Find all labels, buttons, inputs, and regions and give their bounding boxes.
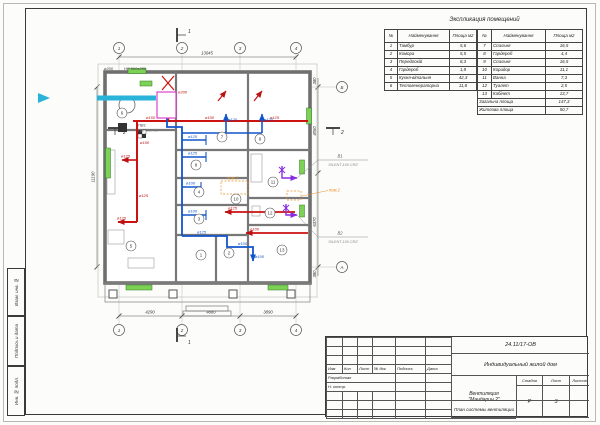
fan1-tag-label: В1 bbox=[337, 154, 342, 159]
schedule-row: 11Ванна7,3 bbox=[478, 75, 583, 83]
room-name: Ванна bbox=[492, 75, 546, 83]
schedule-total-row: Загальна площа147,3 bbox=[478, 99, 583, 107]
title-block: Изм Кол Лист № док Подпись Дата Разработ… bbox=[325, 336, 588, 417]
schedule-row: 9Спальня16,5 bbox=[478, 59, 583, 67]
object-name: Индивидуальный жилой дом bbox=[451, 354, 589, 376]
schedule-row: 5Кухня-вітальня42,3 bbox=[385, 75, 477, 83]
room-num: 10 bbox=[478, 67, 492, 75]
schedule-row: 8Гардероб4,4 bbox=[478, 51, 583, 59]
duct-size-label: ø200 bbox=[178, 90, 188, 95]
duct-size-label: ø125 bbox=[139, 193, 149, 198]
dim-label: 380 bbox=[312, 270, 317, 278]
room-area: 2,5 bbox=[546, 83, 583, 91]
duct-size-label: ø125 bbox=[264, 117, 274, 122]
section-mark-label: 1 bbox=[188, 29, 191, 35]
room-number: 11 bbox=[271, 180, 276, 185]
duct-size-label: ø125 bbox=[228, 206, 238, 211]
total-value: 50,7 bbox=[546, 107, 583, 115]
duct-size-label: ø100 bbox=[188, 209, 198, 214]
drawing-title: План системы вентиляции bbox=[451, 400, 516, 418]
zone-label: пом.3 bbox=[227, 176, 239, 181]
sheet-header: Лист bbox=[542, 376, 569, 386]
room-num: 3 bbox=[385, 59, 398, 67]
schedule-row: 3Передпокій8,3 bbox=[385, 59, 477, 67]
rev-col-list: Лист bbox=[358, 365, 373, 374]
schedule-row: 4Гардероб1,8 bbox=[385, 67, 477, 75]
dim-label: 11190 bbox=[91, 171, 96, 183]
room-number: 12 bbox=[268, 211, 273, 216]
zone-label: пом.2 bbox=[329, 188, 341, 193]
room-circle: 8 bbox=[191, 160, 201, 170]
duct-size-label: ø150 bbox=[140, 140, 150, 145]
room-circle: 5 bbox=[126, 241, 136, 251]
drawing-page: Взам. инв. № Подпись и дата Инв. № подл.… bbox=[0, 0, 600, 425]
signature-row: Разработал bbox=[327, 374, 452, 383]
room-num: 12 bbox=[478, 83, 492, 91]
walls bbox=[98, 64, 317, 316]
rev-col-kol: Кол bbox=[343, 365, 358, 374]
room-num: 8 bbox=[478, 51, 492, 59]
ahu-tag-label: ПВ1 bbox=[138, 123, 146, 128]
room-name: Спальня bbox=[492, 43, 546, 51]
duct-size-label: ø100 bbox=[238, 241, 248, 246]
dim-label: 13045 bbox=[201, 51, 213, 56]
schedule-row: 1Тамбур5,6 bbox=[385, 43, 477, 51]
title-block-empty-cell bbox=[516, 400, 589, 418]
room-name: Комора bbox=[398, 51, 450, 59]
role-label: Разработал bbox=[327, 374, 396, 383]
col-header-num: № bbox=[385, 30, 398, 43]
room-name: Кабінет bbox=[492, 91, 546, 99]
ahu-model-label: ПВУ-450-ЕС bbox=[138, 129, 159, 133]
schedule-header-row: № Найменування Площа м2 bbox=[385, 30, 477, 43]
rev-col-data: Дата bbox=[426, 365, 452, 374]
axis-bubble-label: 1 bbox=[118, 46, 121, 51]
axis-bubble-label: 4 bbox=[295, 328, 298, 333]
room-area: 13,7 bbox=[546, 91, 583, 99]
room-name: Туалет bbox=[492, 83, 546, 91]
room-area: 7,3 bbox=[546, 75, 583, 83]
fan1-model-label: SILENT-100 CRZ bbox=[328, 163, 358, 167]
rev-col-izm: Изм bbox=[327, 365, 343, 374]
room-num: 4 bbox=[385, 67, 398, 75]
room-circle: 13 bbox=[277, 245, 287, 255]
axis-bubble-label: 1 bbox=[118, 328, 121, 333]
room-name: Гардероб bbox=[492, 51, 546, 59]
role-label: Н. контр. bbox=[327, 383, 396, 392]
room-circle: 7 bbox=[217, 132, 227, 142]
duct-size-label: ø150 bbox=[205, 115, 215, 120]
room-circle: 4 bbox=[194, 187, 204, 197]
rev-col-doc: № док bbox=[373, 365, 396, 374]
schedule-row: 10Коридор11,1 bbox=[478, 67, 583, 75]
room-area: 5,5 bbox=[450, 51, 477, 59]
dim-label: 380 bbox=[312, 77, 317, 85]
room-num: 5 bbox=[385, 75, 398, 83]
axis-bubble-label: Б bbox=[341, 85, 344, 90]
room-num: 1 bbox=[385, 43, 398, 51]
schedule-row: 6Теплогенераторна11,8 bbox=[385, 83, 477, 91]
axis-bubble-label: 3 bbox=[239, 46, 242, 51]
room-circle: 9 bbox=[255, 134, 265, 144]
room-area: 16,5 bbox=[546, 59, 583, 67]
room-num: 7 bbox=[478, 43, 492, 51]
duct-size-label: ø125 bbox=[188, 151, 198, 156]
revision-header-row: Изм Кол Лист № док Подпись Дата bbox=[327, 365, 452, 374]
room-circle: 3 bbox=[194, 214, 204, 224]
room-num: 9 bbox=[478, 59, 492, 67]
room-area: 4,4 bbox=[546, 51, 583, 59]
dim-label: 4880 bbox=[206, 310, 216, 315]
axis-bubble-label: 2 bbox=[180, 328, 184, 333]
col-header-name: Найменування bbox=[492, 30, 546, 43]
col-header-area: Площа м2 bbox=[450, 30, 477, 43]
schedule-row: 2Комора5,5 bbox=[385, 51, 477, 59]
room-num: 6 bbox=[385, 83, 398, 91]
intake-size-label: ø200 bbox=[104, 66, 114, 71]
duct-size-label: ø125 bbox=[228, 117, 238, 122]
room-num: 11 bbox=[478, 75, 492, 83]
room-num: 2 bbox=[385, 51, 398, 59]
duct-size-label: ø125 bbox=[121, 154, 131, 159]
doc-number: 24.11/17-ОВ bbox=[451, 337, 589, 354]
room-name: Передпокій bbox=[398, 59, 450, 67]
room-name: Тамбур bbox=[398, 43, 450, 51]
schedule-row: 13Кабінет13,7 bbox=[478, 91, 583, 99]
room-name: Гардероб bbox=[398, 67, 450, 75]
section-mark-label: 1 bbox=[188, 340, 191, 346]
room-circle: 12 bbox=[265, 208, 275, 218]
room-name: Кухня-вітальня bbox=[398, 75, 450, 83]
axis-bubble-label: 4 bbox=[295, 46, 298, 51]
total-label: Житлова площа bbox=[478, 107, 546, 115]
fan2-model-label: SILENT-100 CRZ bbox=[328, 240, 358, 244]
room-area: 42,3 bbox=[450, 75, 477, 83]
schedule-row: 12Туалет2,5 bbox=[478, 83, 583, 91]
room-name: Теплогенераторна bbox=[398, 83, 450, 91]
room-number: 13 bbox=[280, 248, 285, 253]
duct-size-label: ø125 bbox=[188, 134, 198, 139]
schedule-row: 7Спальня16,5 bbox=[478, 43, 583, 51]
room-number: 10 bbox=[234, 197, 239, 202]
schedule-table-left: № Найменування Площа м2 1Тамбур5,6 2Комо… bbox=[384, 29, 477, 91]
schedule-header-row: № Найменування Площа м2 bbox=[478, 30, 583, 43]
stage-header: Стадия bbox=[516, 376, 542, 386]
dim-label: 3890 bbox=[263, 310, 273, 315]
col-header-area: Площа м2 bbox=[546, 30, 583, 43]
schedule-table-right: № Найменування Площа м2 7Спальня16,5 8Га… bbox=[477, 29, 583, 115]
axis-bubble-label: 3 bbox=[239, 328, 242, 333]
dim-label: 4290 bbox=[145, 310, 155, 315]
room-area: 8,3 bbox=[450, 59, 477, 67]
room-area: 16,5 bbox=[546, 43, 583, 51]
dim-label: 6370 bbox=[312, 217, 317, 227]
room-area: 11,1 bbox=[546, 67, 583, 75]
total-label: Загальна площа bbox=[478, 99, 546, 107]
duct-size-label: ø100 bbox=[186, 181, 196, 186]
room-schedule: Экспликация помещений № Найменування Пло… bbox=[384, 17, 585, 115]
axis-bubble-label: А bbox=[339, 265, 343, 270]
room-circle: 1 bbox=[196, 250, 206, 260]
section-mark-label: 2 bbox=[340, 130, 344, 136]
room-name: Коридор bbox=[492, 67, 546, 75]
duct-size-label: ø100 bbox=[250, 227, 260, 232]
col-header-name: Найменування bbox=[398, 30, 450, 43]
signature-row: Н. контр. bbox=[327, 383, 452, 392]
axis-bubble-label: 2 bbox=[180, 46, 184, 51]
room-circle: 2 bbox=[224, 248, 234, 258]
duct-size-label: ø100 bbox=[255, 254, 265, 259]
schedule-total-row: Житлова площа50,7 bbox=[478, 107, 583, 115]
sheets-header: Листов bbox=[569, 376, 589, 386]
room-circle: 6 bbox=[117, 108, 127, 118]
dim-label: 4060 bbox=[312, 126, 317, 136]
room-num: 13 bbox=[478, 91, 492, 99]
room-circle: 11 bbox=[268, 177, 278, 187]
room-area: 1,8 bbox=[450, 67, 477, 75]
total-value: 147,3 bbox=[546, 99, 583, 107]
col-header-num: № bbox=[478, 30, 492, 43]
room-circle: 10 bbox=[231, 194, 241, 204]
section-mark-label: 2 bbox=[122, 130, 126, 136]
schedule-title: Экспликация помещений bbox=[384, 17, 585, 23]
room-name: Спальня bbox=[492, 59, 546, 67]
room-area: 5,6 bbox=[450, 43, 477, 51]
duct-size-label: ø125 bbox=[197, 230, 207, 235]
fan2-tag-label: В2 bbox=[337, 231, 343, 236]
main-duct-label: НР 500x250 bbox=[124, 66, 147, 71]
room-area: 11,8 bbox=[450, 83, 477, 91]
title-block-revision-grid: Изм Кол Лист № док Подпись Дата Разработ… bbox=[326, 337, 452, 419]
duct-size-label: ø125 bbox=[117, 216, 127, 221]
duct-size-label: ø150 bbox=[146, 115, 156, 120]
rev-col-podpis: Подпись bbox=[396, 365, 426, 374]
